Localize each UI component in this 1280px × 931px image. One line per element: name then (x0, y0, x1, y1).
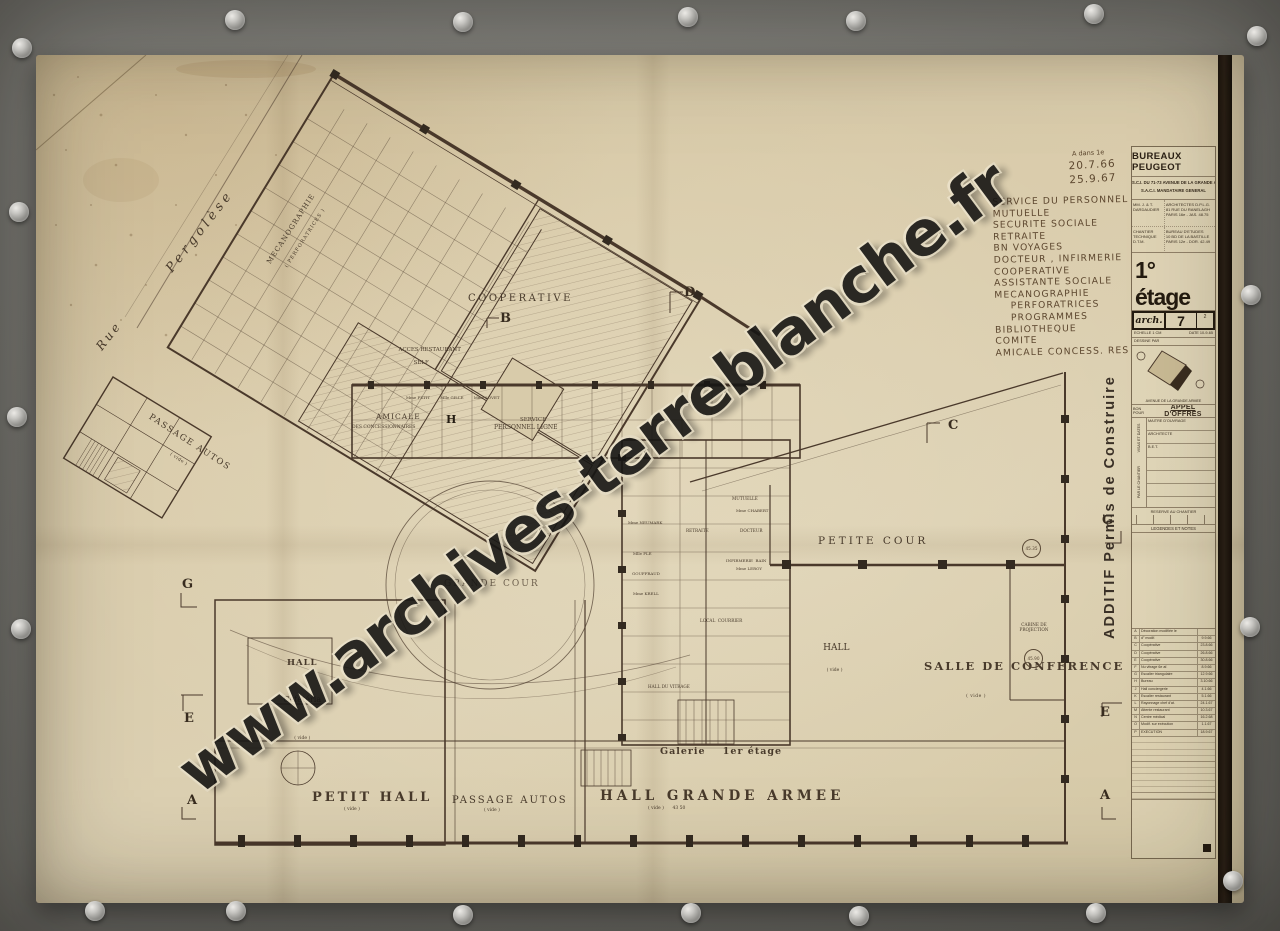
room-label-acces-restaurant: ACCES RESTAURANT SELF (388, 341, 444, 373)
revision-row: C Coopérative 23.8.66 (1132, 643, 1215, 650)
handwritten-dates: 20.7.66 25.9.67 (1068, 158, 1116, 187)
vide-note: ( vide ) (484, 808, 500, 813)
revision-date: 4.1.66 (1198, 687, 1215, 693)
visas-row: ARCHITECTE (1147, 431, 1215, 444)
section-marker-e-right: E (1100, 705, 1110, 720)
court-label-petite-cour: PETITE COUR (818, 535, 928, 547)
revision-row: K Escalier restaurant 5.1.66 (1132, 694, 1215, 701)
visas-row: MAITRE D'OUVRAGE (1147, 418, 1215, 431)
revision-row: P EXECUTION 18.9.67 (1132, 730, 1215, 737)
visas-row (1147, 497, 1215, 508)
owner-block: S.C.I. DU 71-73 AVENUE DE LA GRANDE ARME… (1132, 177, 1215, 200)
push-pin (846, 11, 866, 31)
visas-label: VISAS ET DATES (1137, 418, 1141, 459)
site-key-caption: AVENUE DE LA GRANDE ARMEE (1132, 399, 1215, 403)
revision-description: Bureau (1140, 679, 1198, 685)
visas-row (1147, 484, 1215, 497)
revision-letter: M (1132, 708, 1140, 714)
revision-letter: P (1132, 730, 1140, 736)
micro-label-docteur: DOCTEUR (740, 529, 763, 534)
push-pin (1086, 903, 1106, 923)
revision-row: L Rayonnage chef d'at. 24.1.67 (1132, 701, 1215, 708)
revision-description: Coopérative (1140, 643, 1198, 649)
title-block: BUREAUX PEUGEOT S.C.I. DU 71-73 AVENUE D… (1131, 146, 1216, 859)
appel-offres-label: APPEL D'OFFRES (1151, 405, 1215, 418)
section-marker-a-right: A (1100, 788, 1110, 803)
push-pin (681, 903, 701, 923)
revision-description: Coopérative (1140, 658, 1198, 664)
revision-letter: C (1132, 643, 1140, 649)
legendes-label: LEGENDES ET NOTES (1132, 525, 1215, 533)
push-pin (453, 12, 473, 32)
revision-date: 3.10.66 (1198, 679, 1215, 685)
push-pin (453, 905, 473, 925)
revision-letter: K (1132, 694, 1140, 700)
micro-label-gouffraud: GOUFFRAUD (632, 572, 660, 577)
revision-description: Nu vitrage 6e af. (1140, 665, 1198, 671)
revision-row: G Escalier triangulaire 12.9.66 (1132, 672, 1215, 679)
room-label-text: HALL (823, 643, 849, 653)
revision-description: Attente restaurant (1140, 708, 1198, 714)
micro-label-infirmerie: INFIRMERIE BAIN (726, 559, 766, 564)
push-pin (1247, 26, 1267, 46)
push-pin (11, 619, 31, 639)
reserve-ticks (1136, 515, 1211, 524)
scale-label: ECHELLE 1 CM (1134, 331, 1161, 336)
level-value: 45.90 (1028, 656, 1040, 661)
revisions-table: A Décoration modifiée le B d° modif. 9.9… (1132, 629, 1215, 800)
visas-label: PAR LE CHANTIER (1137, 461, 1141, 503)
arch-indice: 2 (1196, 313, 1213, 328)
revision-date: 30.8.66 (1198, 658, 1215, 664)
revision-row: M Attente restaurant 10.3.67 (1132, 708, 1215, 715)
room-label-amicale: AMICALE (376, 413, 421, 422)
bon-pour-row: BON POUR APPEL D'OFFRES (1132, 405, 1215, 418)
revision-description: Rayonnage chef d'at. (1140, 701, 1198, 707)
galerie-label: Galerie 1er étage (660, 747, 782, 758)
section-marker-g-left: G (182, 577, 193, 592)
level-mark: 45.90 (1024, 649, 1043, 668)
drawing-number-block: arch. 7 2 (1132, 311, 1215, 330)
revision-description: Hall conciergerie (1140, 687, 1198, 693)
section-marker-b: B (500, 311, 511, 326)
architect-name: MM. J. & T. DARDAUDIER (1132, 200, 1165, 226)
room-label-cooperative: COOPERATIVE (468, 293, 573, 305)
project-title: BUREAUX PEUGEOT (1132, 147, 1215, 177)
hall-label-petit-hall: PETIT HALL (312, 791, 432, 806)
revision-date: 18.9.67 (1198, 730, 1215, 736)
revision-letter: B (1132, 636, 1140, 642)
revision-date: 12.9.66 (1198, 672, 1215, 678)
reserve-chantier-row: RESERVE AU CHANTIER (1132, 508, 1215, 525)
title-block-footer (1132, 800, 1215, 858)
reserve-label: RESERVE AU CHANTIER (1132, 508, 1215, 514)
section-marker-a-left: A (187, 793, 197, 808)
section-marker-d: D (684, 285, 695, 300)
room-label-concessionnaires: DES CONCESSIONNAIRES (352, 425, 415, 430)
push-pin (1241, 285, 1261, 305)
micro-label-mme-chabert: Mme CHABERT (736, 509, 768, 514)
push-pin (12, 38, 32, 58)
revision-date: 23.8.66 (1198, 643, 1215, 649)
push-pin (1084, 4, 1104, 24)
floor-title: 1° étage (1132, 253, 1215, 311)
room-label-service: SERVICE (520, 417, 546, 423)
visas-row: B.E.T. (1147, 444, 1215, 457)
scale-date-row: ECHELLE 1 CM DATE 10-9-65 (1132, 330, 1215, 338)
micro-label-retraite: RETRAITE (686, 529, 709, 534)
sheet-edge-dark-strip (1218, 55, 1232, 903)
revision-row: B d° modif. 9.9.66 (1132, 636, 1215, 643)
legendes-box (1132, 533, 1215, 629)
push-pin (9, 202, 29, 222)
revision-letter: H (1132, 679, 1140, 685)
architect-address: ARCHITECTES D.P.L.G. 81 RUE DU RANELAGH … (1165, 200, 1215, 226)
revision-letter: O (1132, 722, 1140, 728)
visas-row (1147, 471, 1215, 484)
revision-date (1198, 629, 1215, 635)
push-pin (226, 901, 246, 921)
revision-description: Escalier triangulaire (1140, 672, 1198, 678)
room-label-names-row: Mme PETIT Mlle GILLE Mme LOVET (406, 396, 500, 401)
vide-note: ( vide ) (169, 452, 188, 467)
site-key-diagram: AVENUE DE LA GRANDE ARMEE (1132, 346, 1215, 405)
micro-label-mme-krell: Mme KRELL (633, 592, 659, 597)
revision-date: 9.9.66 (1198, 636, 1215, 642)
push-pin (849, 906, 869, 926)
room-label-hall: HALL ( vide ) (806, 633, 846, 685)
revision-description: Centre médical (1140, 715, 1198, 721)
revision-date: 26.8.66 (1198, 651, 1215, 657)
visas-table: VISAS ET DATES PAR LE CHANTIER MAITRE D'… (1132, 418, 1215, 508)
revision-letter: L (1132, 701, 1140, 707)
floor-block: 1° étage NIVEAU 45.20 (1132, 253, 1215, 311)
hall-grande-armee-subnote: ( vide ) 43 50 (648, 806, 685, 811)
revision-letter: A (1132, 629, 1140, 635)
arch-number: 7 (1164, 313, 1196, 328)
date-label: DATE 10-9-65 (1189, 331, 1213, 336)
push-pin (85, 901, 105, 921)
micro-label-hall-du-vitrage: HALL DU VITRAGE (648, 685, 690, 690)
push-pin (225, 10, 245, 30)
owner-line: S.A.C.I. MANDATAIRE GENERAL (1132, 187, 1215, 195)
revision-description: Modif. sur exécution (1140, 722, 1198, 728)
bon-pour-label: BON POUR (1132, 407, 1151, 415)
arch-label: arch. (1134, 313, 1164, 328)
room-label-text: SELF (414, 360, 429, 366)
revision-date: 25.9.67 (1069, 171, 1117, 187)
photo-of-archived-drawing: Pergolèse Rue PASSAGE AUTOS ( vide ) MEC… (0, 0, 1280, 931)
vide-note: ( vide ) (827, 668, 843, 673)
room-label-cabine-projection: CABINE DE PROJECTION (1012, 623, 1056, 633)
revision-description: Escalier restaurant (1140, 694, 1198, 700)
vide-note: ( vide ) (344, 807, 360, 812)
revision-date: 16.2.68 (1198, 715, 1215, 721)
engineer-name: CHANTIER TECHNIQUE D.T.M. (1132, 227, 1165, 253)
revision-row: J Hall conciergerie 4.1.66 (1132, 687, 1215, 694)
revision-description: d° modif. (1140, 636, 1198, 642)
revision-date: 8.9.66 (1198, 665, 1215, 671)
revision-row: O Modif. sur exécution 1.1.67 (1132, 722, 1215, 729)
vide-note: ( vide ) (966, 694, 986, 699)
micro-label-mme-neumark: Mme NEUMARK (628, 521, 662, 526)
revision-letter: F (1132, 665, 1140, 671)
hall-label-passage-autos-lower: PASSAGE AUTOS (452, 795, 568, 807)
drawn-by-row: DESSINE PAR (1132, 338, 1215, 346)
revision-description: Décoration modifiée le (1140, 629, 1198, 635)
revision-row: H Bureau 3.10.66 (1132, 679, 1215, 686)
architects-block: MM. J. & T. DARDAUDIER ARCHITECTES D.P.L… (1132, 200, 1215, 253)
revision-date: 10.3.67 (1198, 708, 1215, 714)
revision-row: E Coopérative 30.8.66 (1132, 658, 1215, 665)
micro-label-mlle-ple: Mlle PLE (633, 552, 652, 557)
micro-label-mme-leroy: Mme LEROY (736, 567, 762, 572)
section-marker-c: C (948, 418, 958, 433)
revision-date: 24.1.67 (1198, 701, 1215, 707)
handwritten-note: A dans 1e (1072, 148, 1105, 158)
revision-description: EXECUTION (1140, 730, 1198, 736)
micro-label-local-courrier: LOCAL COURRIER (700, 619, 742, 624)
room-label-text: ACCES RESTAURANT (399, 347, 461, 353)
revision-letter: E (1132, 658, 1140, 664)
section-marker-h: H (446, 413, 456, 426)
revision-empty-rows (1132, 737, 1215, 800)
revision-letter: G (1132, 672, 1140, 678)
revision-row: N Centre médical 16.2.68 (1132, 715, 1215, 722)
revision-letter: D (1132, 651, 1140, 657)
revision-date: 1.1.67 (1198, 722, 1215, 728)
additif-permis-note: ADDITIF Permis de Construire (1102, 197, 1122, 639)
push-pin (1223, 871, 1243, 891)
push-pin (1240, 617, 1260, 637)
room-label-personnel-ligne: PERSONNEL LIGNE (494, 425, 558, 432)
room-label-salle-conference: SALLE DE CONFERENCE ( vide ) (888, 647, 1028, 713)
level-mark: 45.35 (1022, 539, 1041, 558)
site-key-shape (1132, 346, 1215, 394)
engineer-address: BUREAU D'ETUDES 10 BD DE LA BASTILLE PAR… (1165, 227, 1215, 253)
visas-row (1147, 458, 1215, 471)
revision-letter: N (1132, 715, 1140, 721)
revision-date: 5.1.66 (1198, 694, 1215, 700)
owner-line: S.C.I. DU 71-73 AVENUE DE LA GRANDE ARME… (1132, 179, 1215, 187)
section-marker-e-left: E (184, 711, 194, 726)
footer-stamp (1203, 844, 1211, 852)
revision-row: D Coopérative 26.8.66 (1132, 651, 1215, 658)
push-pin (678, 7, 698, 27)
revision-letter: J (1132, 687, 1140, 693)
level-value: 45.35 (1026, 546, 1038, 551)
revision-row: A Décoration modifiée le (1132, 629, 1215, 636)
push-pin (7, 407, 27, 427)
revision-row: F Nu vitrage 6e af. 8.9.66 (1132, 665, 1215, 672)
revision-description: Coopérative (1140, 651, 1198, 657)
hall-label-hall-grande-armee: HALL GRANDE ARMEE (600, 789, 844, 805)
micro-label-mutuelle: MUTUELLE (732, 497, 758, 502)
